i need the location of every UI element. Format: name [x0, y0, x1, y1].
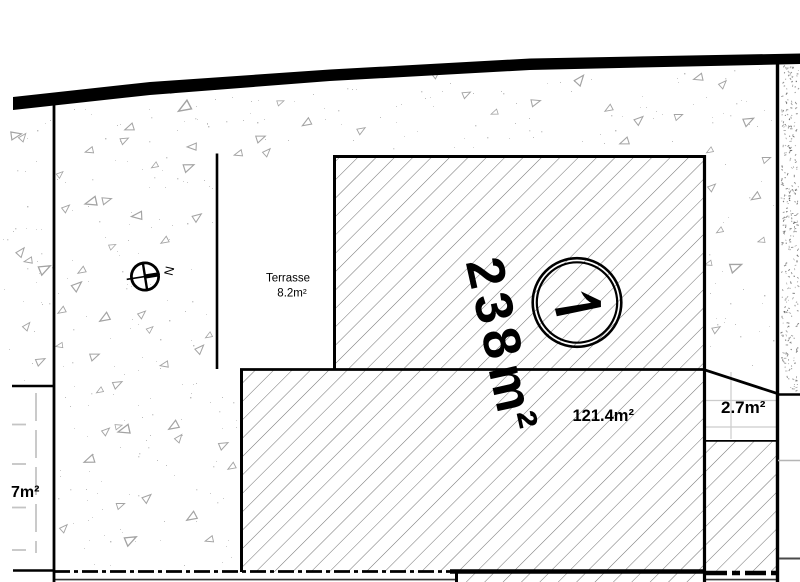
svg-text:8.2m²: 8.2m² — [277, 288, 307, 300]
svg-text:7m²: 7m² — [11, 484, 39, 501]
svg-text:Terrasse: Terrasse — [266, 273, 310, 285]
svg-text:2.7m²: 2.7m² — [721, 398, 766, 417]
svg-text:121.4m²: 121.4m² — [573, 407, 635, 425]
